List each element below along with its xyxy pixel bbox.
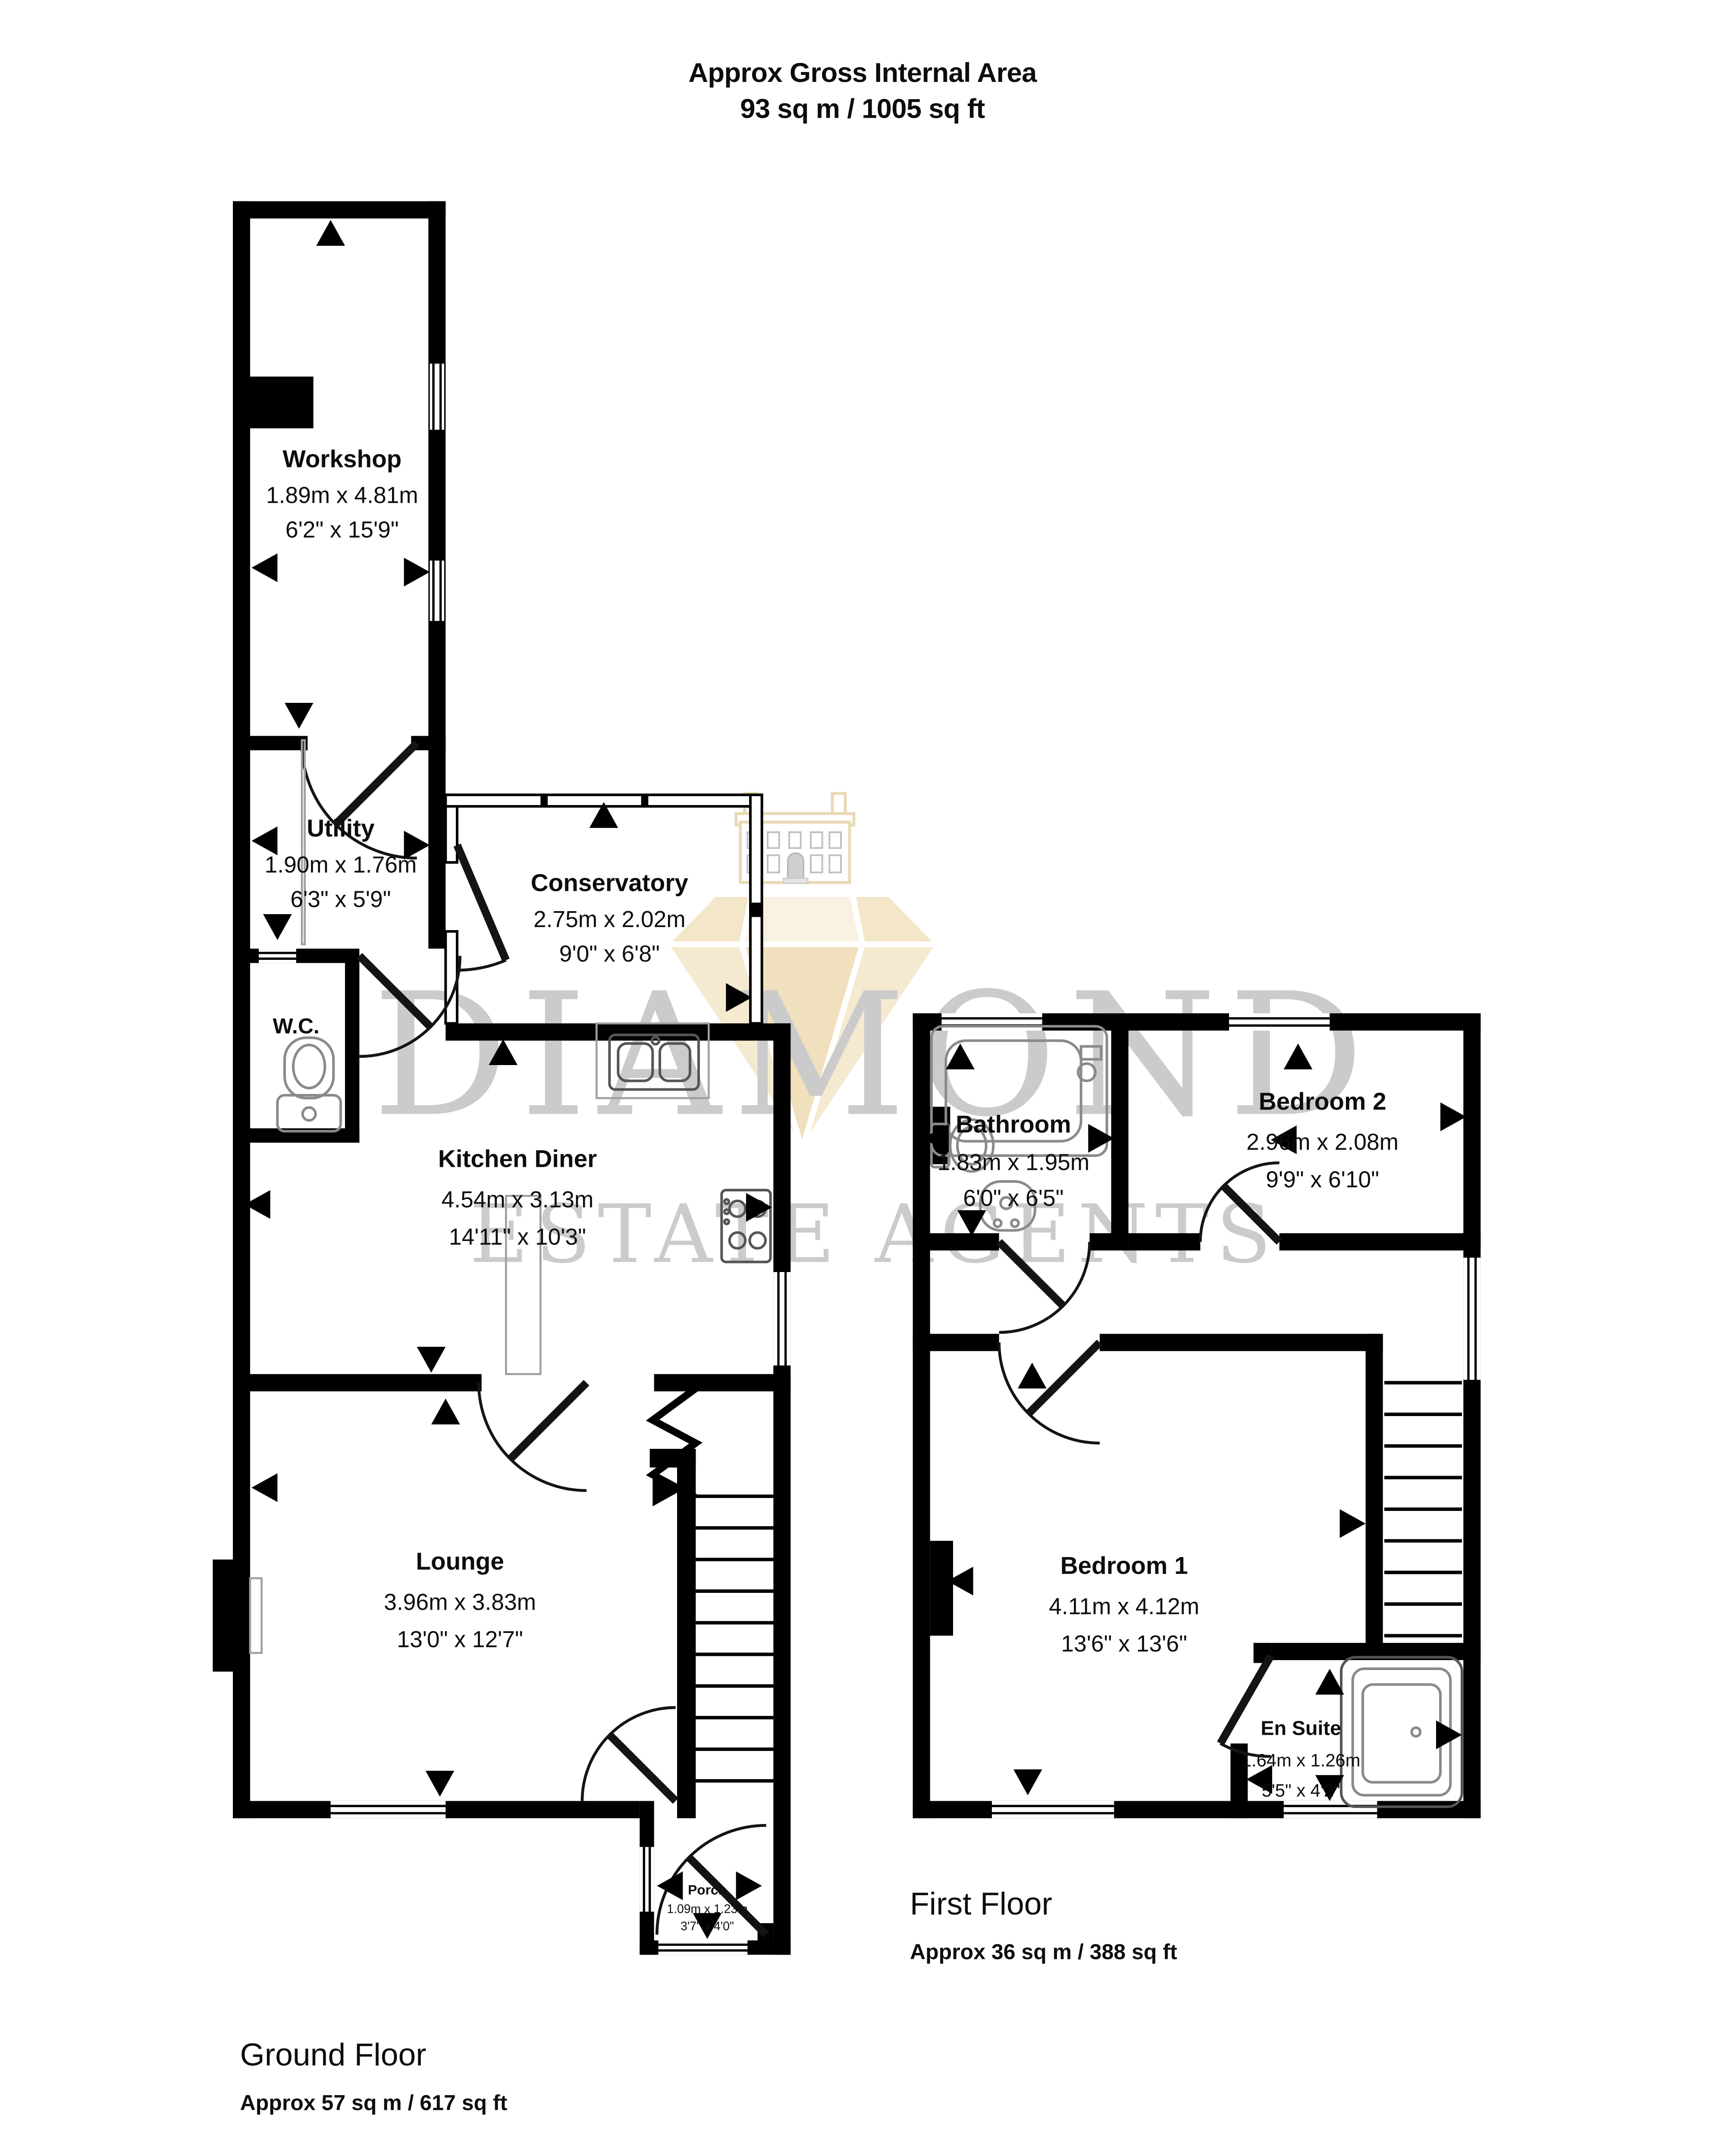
utility-label: Utility	[307, 815, 375, 842]
window	[1229, 1013, 1330, 1031]
porch-dims-imperial: 3'7" x 4'0"	[681, 1920, 734, 1934]
page-title-line1: Approx Gross Internal Area	[688, 58, 1037, 88]
window	[659, 1940, 748, 1955]
room-lounge: Lounge 3.96m x 3.83m 13'0" x 12'7"	[384, 1548, 536, 1652]
bedroom1-dims-metric: 4.11m x 4.12m	[1049, 1594, 1199, 1619]
porch-label: Porch	[688, 1882, 727, 1897]
room-ensuite: En Suite 1.64m x 1.26m 5'5" x 4'2"	[1242, 1717, 1361, 1800]
conservatory-dims-metric: 2.75m x 2.02m	[533, 907, 686, 932]
window	[1284, 1801, 1377, 1818]
stairs	[696, 1496, 773, 1781]
lounge-dims-imperial: 13'0" x 12'7"	[397, 1627, 523, 1652]
workshop-dims-imperial: 6'2" x 15'9"	[285, 517, 399, 543]
window	[430, 561, 444, 621]
window	[259, 949, 296, 963]
floorplan-page: DIAMOND ESTATE AGENTS Approx Gross Inter…	[0, 0, 1725, 2156]
bedroom2-dims-metric: 2.96m x 2.08m	[1246, 1130, 1399, 1155]
bathroom-dims-imperial: 6'0" x 6'5"	[963, 1186, 1063, 1211]
lounge-dims-metric: 3.96m x 3.83m	[384, 1589, 536, 1615]
ground-floor-area: Approx 57 sq m / 617 sq ft	[240, 2090, 508, 2115]
ground-floor-caption: Ground Floor	[240, 2037, 427, 2072]
first-floor-area: Approx 36 sq m / 388 sq ft	[910, 1940, 1177, 1964]
room-conservatory: Conservatory 2.75m x 2.02m 9'0" x 6'8"	[531, 870, 689, 967]
bedroom2-dims-imperial: 9'9" x 6'10"	[1266, 1167, 1379, 1192]
ensuite-dims-metric: 1.64m x 1.26m	[1242, 1750, 1361, 1771]
first-floor-caption: First Floor	[910, 1886, 1052, 1921]
page-title-line2: 93 sq m / 1005 sq ft	[740, 94, 985, 124]
floorplan-image: DIAMOND ESTATE AGENTS Approx Gross Inter…	[0, 0, 1725, 2156]
bedroom1-label: Bedroom 1	[1060, 1552, 1188, 1579]
bedroom2-label: Bedroom 2	[1259, 1088, 1386, 1115]
utility-dims-imperial: 6'3" x 5'9"	[290, 887, 391, 912]
window	[773, 1272, 790, 1366]
kitchen-diner-label: Kitchen Diner	[438, 1146, 597, 1173]
bathroom-label: Bathroom	[956, 1111, 1071, 1138]
kitchen-diner-dims-metric: 4.54m x 3.13m	[442, 1187, 594, 1213]
window	[941, 1013, 1042, 1031]
conservatory-label: Conservatory	[531, 870, 689, 897]
window	[992, 1801, 1114, 1818]
room-bedroom1: Bedroom 1 4.11m x 4.12m 13'6" x 13'6"	[1049, 1552, 1199, 1657]
conservatory-dims-imperial: 9'0" x 6'8"	[559, 941, 660, 967]
kitchen-diner-dims-imperial: 14'11" x 10'3"	[449, 1225, 586, 1250]
room-bedroom2: Bedroom 2 2.96m x 2.08m 9'9" x 6'10"	[1246, 1088, 1399, 1192]
room-utility: Utility 1.90m x 1.76m 6'3" x 5'9"	[265, 815, 417, 912]
window	[331, 1801, 446, 1818]
room-workshop: Workshop 1.89m x 4.81m 6'2" x 15'9"	[266, 445, 418, 542]
ensuite-dims-imperial: 5'5" x 4'2"	[1262, 1780, 1340, 1801]
door-arc	[479, 1383, 586, 1491]
door-arc	[457, 845, 506, 970]
lounge-label: Lounge	[416, 1548, 504, 1575]
door-arc	[582, 1708, 676, 1801]
wc-toilet-icon	[277, 1038, 341, 1131]
utility-dims-metric: 1.90m x 1.76m	[265, 852, 417, 877]
room-kitchen-diner: Kitchen Diner 4.54m x 3.13m 14'11" x 10'…	[438, 1146, 597, 1250]
window	[430, 364, 444, 429]
porch-dims-metric: 1.09m x 1.23m	[667, 1902, 747, 1916]
bathroom-dims-metric: 1.83m x 1.95m	[938, 1150, 1090, 1175]
stairs	[1384, 1383, 1462, 1636]
watermark-word-1: DIAMOND	[373, 956, 1376, 1154]
window	[640, 1847, 654, 1912]
bedroom1-dims-imperial: 13'6" x 13'6"	[1061, 1631, 1187, 1657]
fireplace-icon	[250, 1578, 262, 1653]
workshop-label: Workshop	[282, 445, 401, 473]
door-arc	[999, 1342, 1100, 1443]
ensuite-label: En Suite	[1261, 1717, 1341, 1739]
workshop-dims-metric: 1.89m x 4.81m	[266, 483, 418, 508]
window	[1463, 1258, 1480, 1380]
wc-label: W.C.	[273, 1014, 320, 1038]
door-arc	[1220, 1656, 1271, 1756]
